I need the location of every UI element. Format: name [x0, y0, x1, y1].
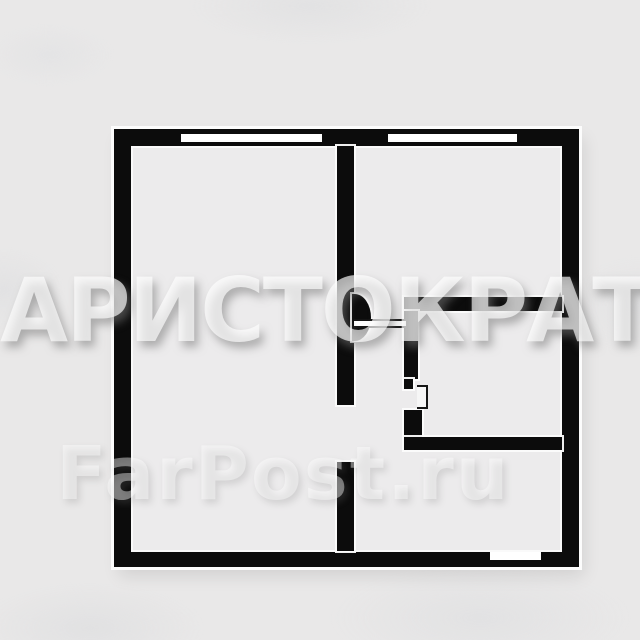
- window-top-right: [388, 134, 517, 142]
- bathroom-wall-bottom: [404, 437, 562, 450]
- bathroom-wall-left-upper: [404, 311, 418, 379]
- entrance-door-notch: [490, 552, 541, 560]
- floor-plan: [114, 129, 579, 567]
- bathroom-door-jamb: [404, 379, 413, 389]
- window-top-left: [181, 134, 322, 142]
- bathroom-door-leaf: [417, 385, 428, 409]
- bathroom-wall-top: [404, 297, 562, 311]
- kitchen-doorway-threshold: [354, 319, 406, 328]
- divider-wall-upper: [337, 146, 354, 405]
- bathroom-wall-left-lower: [404, 410, 422, 438]
- divider-wall-lower: [337, 462, 354, 551]
